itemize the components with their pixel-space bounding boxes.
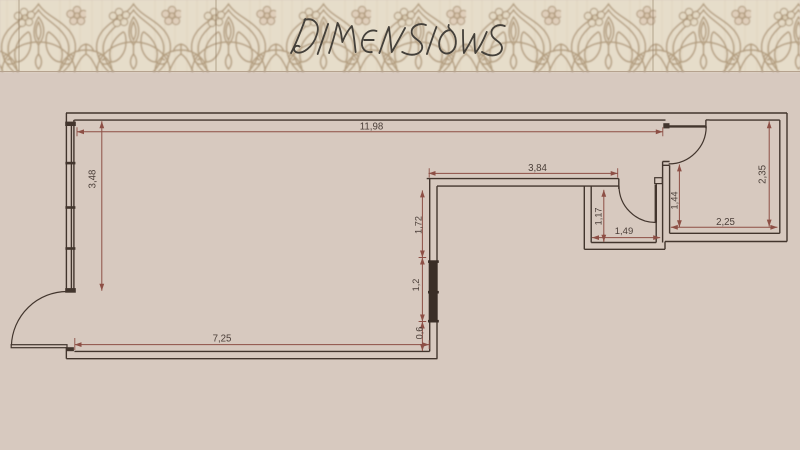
svg-text:3,84: 3,84 [528,163,547,174]
svg-text:3,48: 3,48 [88,170,99,189]
svg-text:1,72: 1,72 [413,216,423,234]
svg-text:1,17: 1,17 [593,207,603,225]
svg-text:7,25: 7,25 [213,333,232,344]
svg-text:1,44: 1,44 [669,192,679,210]
svg-text:11,98: 11,98 [360,121,384,132]
svg-text:2,35: 2,35 [757,165,768,184]
svg-text:2,25: 2,25 [716,217,735,228]
svg-text:1,49: 1,49 [615,226,634,237]
svg-text:0,6: 0,6 [414,327,424,340]
svg-text:1,2: 1,2 [411,279,421,292]
